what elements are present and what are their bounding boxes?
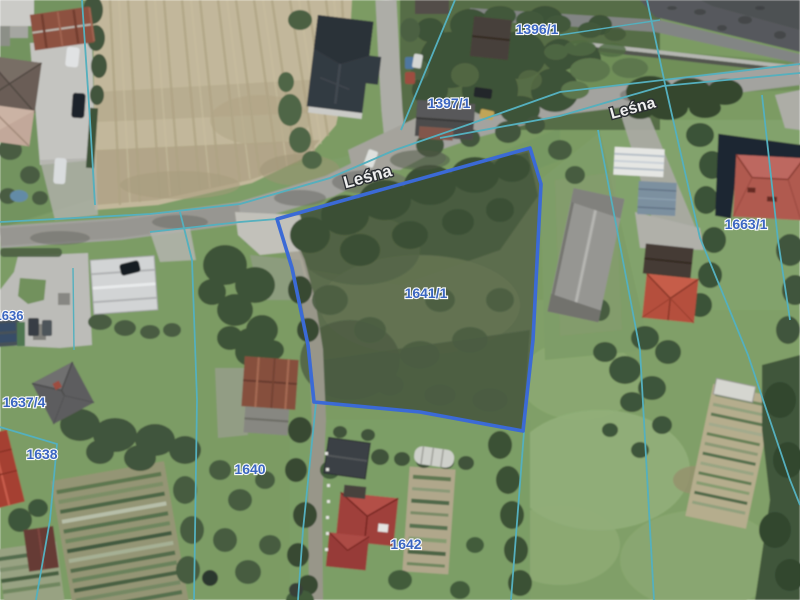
- svg-text:1642: 1642: [390, 536, 421, 552]
- svg-text:1640: 1640: [234, 461, 265, 477]
- svg-text:1663/1: 1663/1: [725, 216, 768, 232]
- svg-text:1397/1: 1397/1: [428, 95, 471, 111]
- svg-text:1641/1: 1641/1: [405, 285, 448, 301]
- svg-text:1638: 1638: [26, 446, 57, 462]
- svg-text:1396/1: 1396/1: [516, 21, 559, 37]
- svg-text:1637/4: 1637/4: [3, 394, 46, 410]
- svg-text:1636: 1636: [0, 308, 23, 323]
